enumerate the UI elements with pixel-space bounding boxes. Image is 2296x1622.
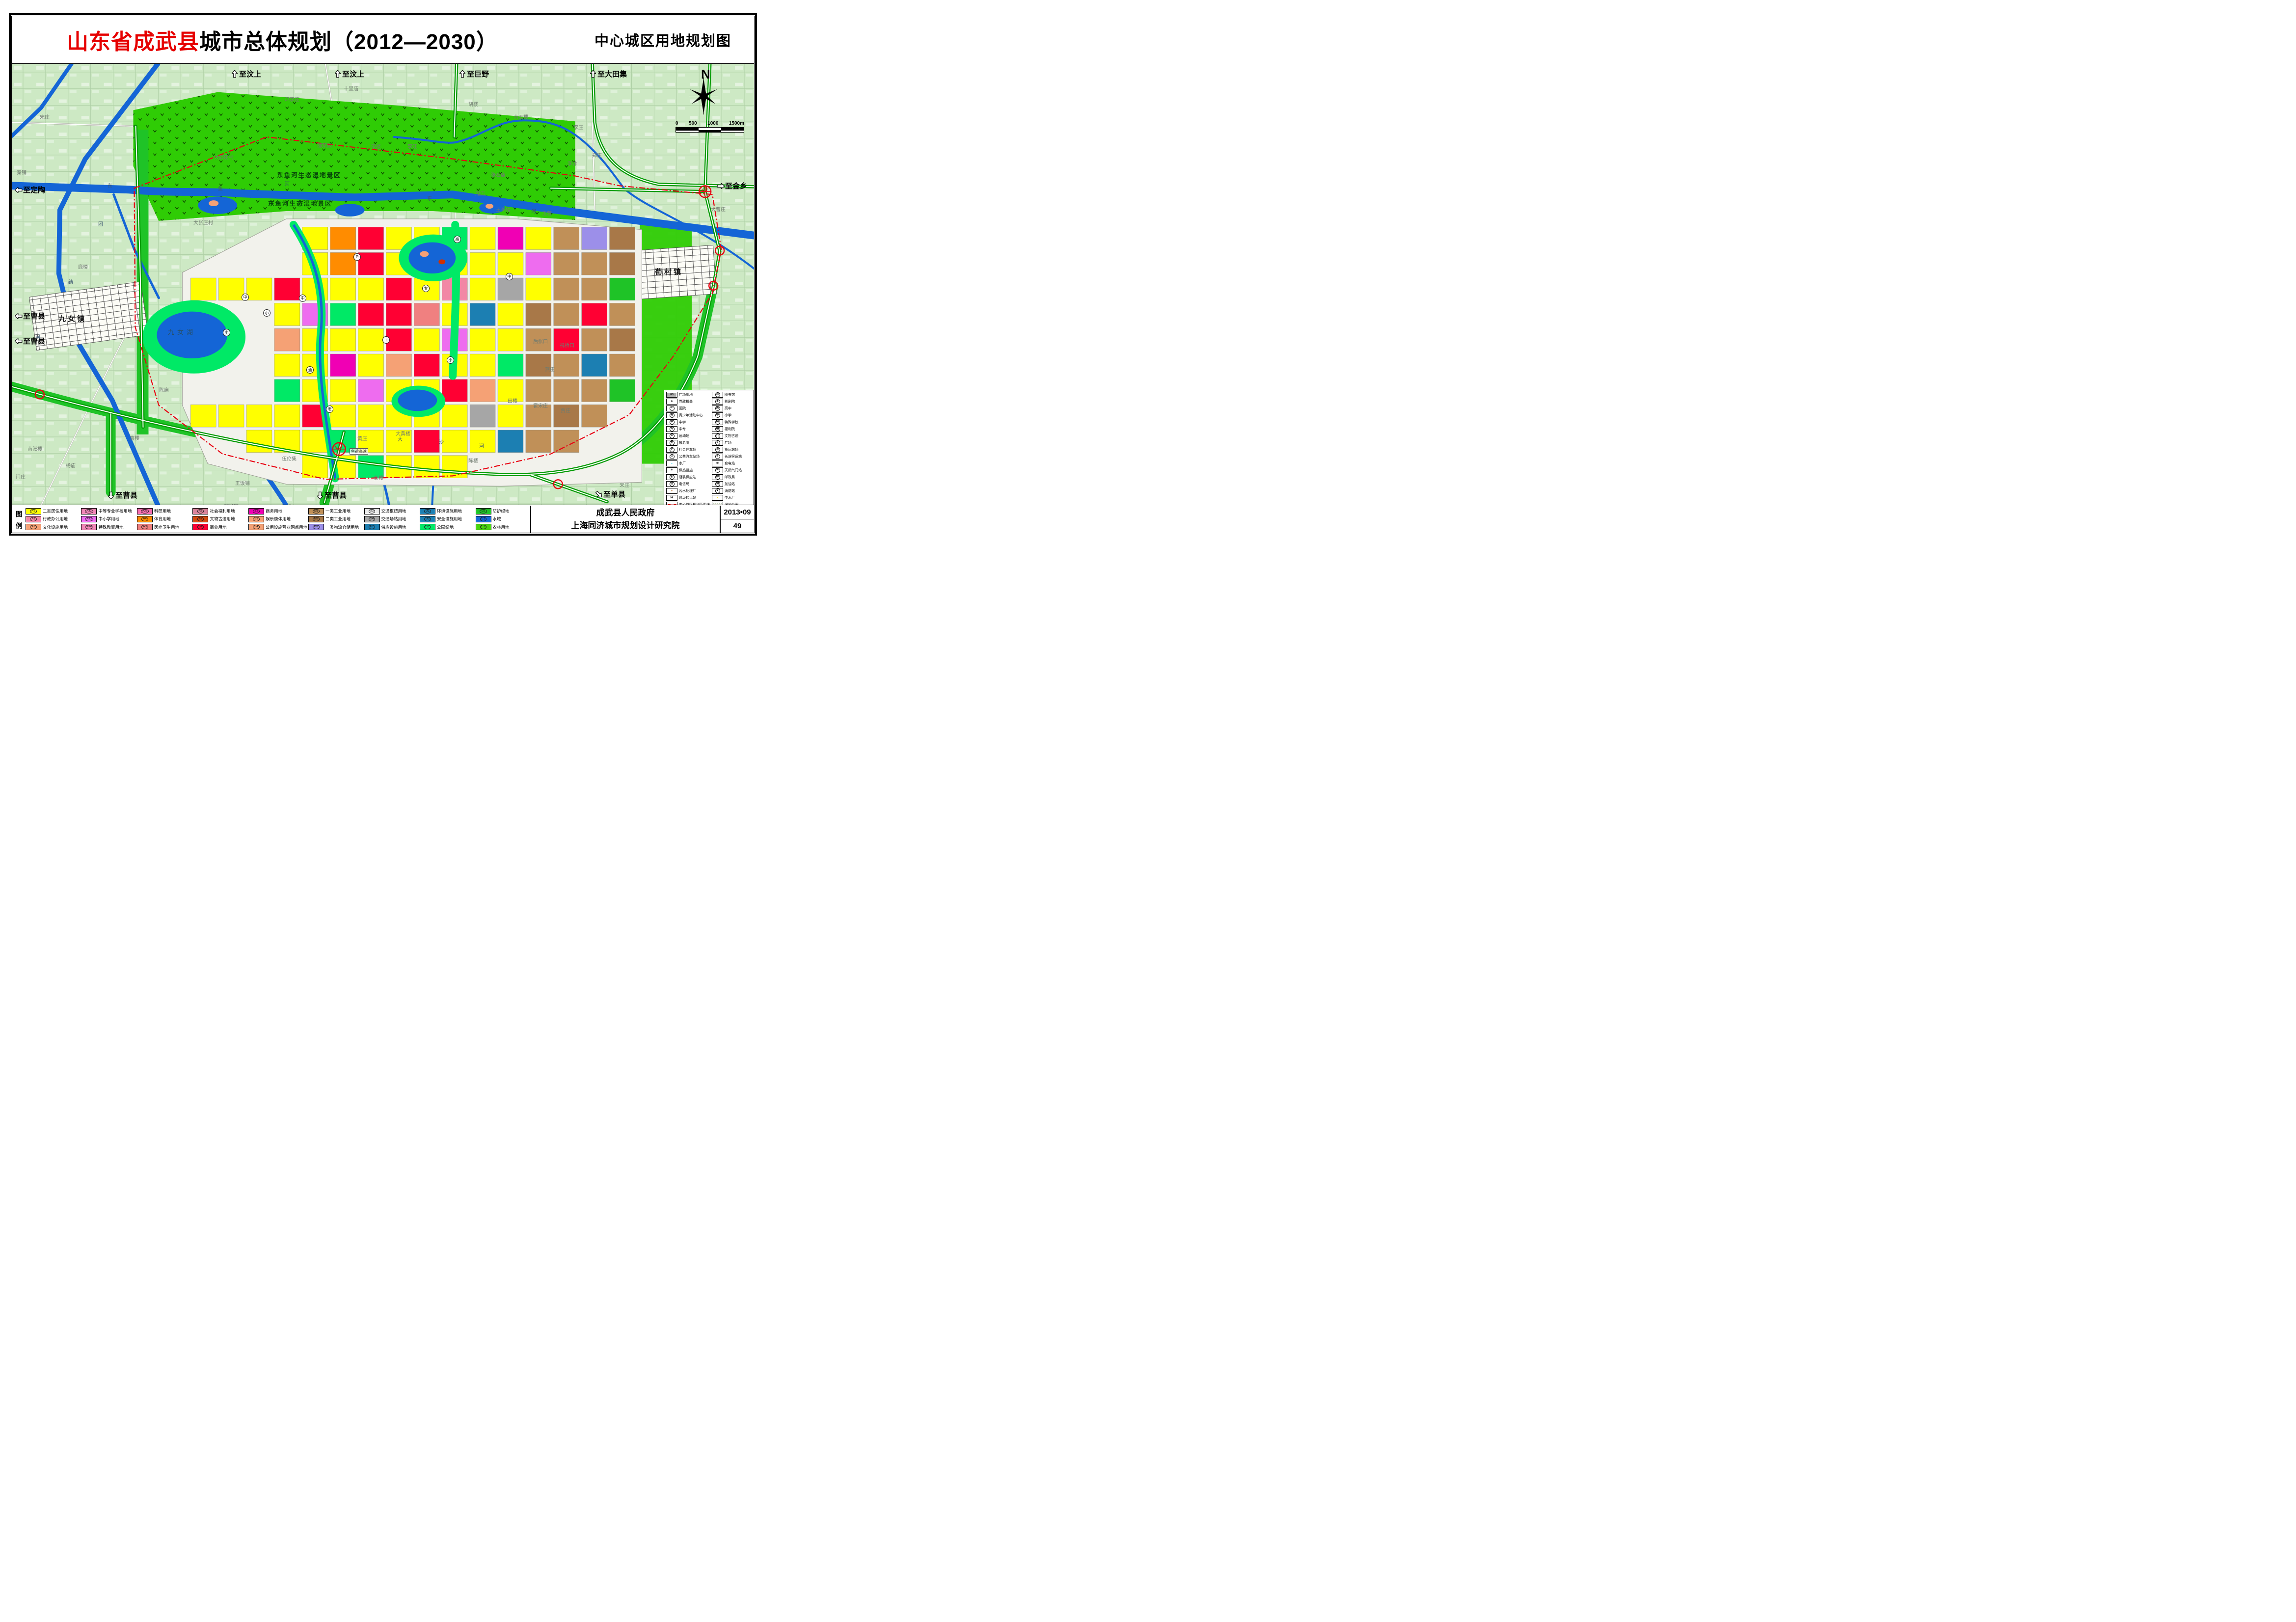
landuse-block-B2: [330, 354, 356, 377]
symbol-legend-item: ▮ 瓶装供应站: [666, 474, 710, 480]
legend-item: E2 农林用地: [476, 523, 531, 531]
symbol-legend-item: ⊟ 公共汽车站场: [666, 454, 710, 460]
landuse-block-S4: [498, 278, 523, 300]
title-block-numbers: 2013•09 49: [720, 506, 754, 533]
symbol-legend-item: ∏ 文物古迹: [712, 433, 753, 439]
legend-label: 文化设施用地: [43, 524, 68, 530]
legend-color-swatch: E2: [476, 524, 491, 530]
symbol-icon: ◒: [717, 496, 719, 500]
legend-label: 防护绿地: [493, 508, 510, 514]
legend-item: E1 水域: [476, 515, 531, 523]
legend-color-swatch: E1: [476, 516, 491, 522]
legend-item: A7 文物古迹用地: [192, 515, 247, 523]
landuse-block-R2: [442, 405, 467, 427]
symbol-icon: ⇄: [715, 447, 720, 452]
symbol-label: 货运站场: [725, 447, 738, 452]
scale-tick: 1500m: [729, 121, 744, 126]
legend-code: A35: [141, 509, 149, 514]
legend-color-swatch: A35: [137, 508, 153, 514]
north-label: N: [701, 67, 710, 82]
legend-color-swatch: R2: [26, 508, 41, 514]
symbol-label: 中学: [679, 420, 686, 425]
legend-color-swatch: M1: [308, 508, 324, 514]
symbol-legend-item: 中 中学: [666, 419, 710, 425]
symbol-icon: ⊠: [715, 468, 720, 473]
scale-tick: 500: [689, 121, 697, 126]
legend-item: A4 体育用地: [137, 515, 192, 523]
symbol-icon: ☸: [715, 454, 720, 459]
symbol-icon-frame: ⊟: [666, 454, 677, 460]
symbol-icon-frame: ◉: [712, 399, 723, 405]
legend-label: 特殊教育用地: [98, 524, 123, 530]
legend-color-swatch: U3: [420, 516, 435, 522]
landuse-block-R2: [190, 278, 216, 300]
legend-label: 中等专业学校用地: [98, 508, 132, 514]
symbol-label: 医院: [679, 406, 686, 411]
facility-marker-icon: 中: [299, 295, 306, 302]
legend-label: 中小学用地: [98, 516, 119, 522]
legend-color-swatch: A4: [137, 516, 153, 522]
landuse-block-A33: [526, 252, 551, 275]
symbol-label: 高中: [725, 406, 731, 411]
symbol-legend-item: 邮 邮政局: [712, 474, 753, 480]
facility-marker-icon: 高: [454, 236, 461, 243]
legend-item: A2 文化设施用地: [26, 523, 80, 531]
landuse-block-G2: [610, 278, 635, 300]
landuse-block-B1: [386, 303, 411, 326]
landuse-block-R2: [470, 430, 495, 453]
symbol-label: 污水处理厂: [679, 488, 696, 493]
symbol-label: 广场: [725, 440, 731, 445]
legend-code: A2: [30, 525, 36, 529]
legend-code: S4: [369, 517, 375, 521]
landuse-block-M2: [610, 252, 635, 275]
symbol-label: 长途客运站: [725, 454, 742, 459]
legend-item: S3 交通枢纽用地: [364, 507, 419, 515]
landuse-block-G1: [274, 379, 300, 402]
symbol-legend-item: 老 敬老院: [666, 440, 710, 446]
facility-marker-icon: 小: [447, 356, 454, 364]
legend-item: U2 环境设施用地: [420, 507, 475, 515]
symbol-legend-item: 专 中专: [666, 426, 710, 432]
government-name: 成武县人民政府: [531, 507, 720, 519]
symbol-legend-item: S 广场: [712, 440, 753, 446]
landuse-block-B1: [414, 354, 439, 377]
landuse-block-M1: [610, 354, 635, 377]
symbol-icon: ∏: [715, 433, 720, 438]
symbol-legend-item: ⊖ 运动场: [666, 433, 710, 439]
symbol-legend-item: ◒ 污水处理厂: [666, 488, 710, 494]
landuse-block-R2: [498, 252, 523, 275]
scale-tick: 1000: [707, 121, 718, 126]
symbol-label: 加油站: [725, 482, 735, 487]
legend-label: 行政办公用地: [43, 516, 68, 522]
symbol-icon-frame: 信: [666, 481, 677, 487]
legend-label: 交通枢纽用地: [381, 508, 406, 514]
legend-label: 体育用地: [154, 516, 171, 522]
sheet-number: 49: [721, 519, 754, 533]
symbol-label: 水厂: [679, 461, 686, 466]
legend-code: A5: [141, 525, 148, 529]
symbol-legend-item: + 医院: [666, 405, 710, 411]
landuse-block-M1: [554, 379, 579, 402]
legend-code: A6: [197, 509, 204, 514]
landuse-block-R2: [302, 430, 328, 453]
landuse-block-B1: [274, 278, 300, 300]
legend-item: B4 公用设施营业网点用地: [248, 523, 307, 531]
legend-label: 文物古迹用地: [210, 516, 235, 522]
landuse-block-B3: [470, 379, 495, 402]
legend-item: U3 安全设施用地: [420, 515, 475, 523]
symbol-legend-item: ⊠ 天然气门站: [712, 467, 753, 473]
legend-label: 水域: [493, 516, 501, 522]
legend-item: U1 供应设施用地: [364, 523, 419, 531]
symbol-icon-frame: ▤: [712, 392, 723, 398]
facility-marker-icon: 油: [306, 366, 314, 374]
symbol-icon-frame: ☸: [712, 454, 723, 460]
legend-code: A7: [197, 517, 204, 521]
symbol-icon: ◒: [671, 462, 673, 465]
facility-marker-icon: 中: [242, 294, 249, 301]
landuse-block-R2: [358, 328, 384, 351]
symbol-icon-frame: 小: [712, 412, 723, 418]
legend-label: 环境设施用地: [437, 508, 462, 514]
map-canvas[interactable]: 至汶上 至汶上 至巨野: [12, 63, 754, 505]
landuse-block-B1: [554, 328, 579, 351]
legend-item: M2 二类工业用地: [308, 515, 363, 523]
landuse-block-R2: [274, 303, 300, 326]
inner-border: 山东省成武县城市总体规划（2012—2030） 中心城区用地规划图: [11, 16, 755, 533]
symbol-legend-item: G3 广场用地: [666, 392, 710, 398]
landuse-legend: 图例 R2 二类居住用地 A1 行政办公用地: [12, 506, 530, 533]
legend-color-swatch: G1: [420, 524, 435, 530]
legend-color-swatch: M2: [308, 516, 324, 522]
legend-code: U1: [369, 525, 376, 529]
legend-label: 公用设施营业网点用地: [266, 524, 307, 530]
landuse-block-R2: [442, 430, 467, 453]
symbol-icon: ▤: [715, 392, 720, 397]
legend-code: A1: [30, 517, 36, 521]
legend-code: E2: [480, 525, 486, 529]
legend-code: B1: [197, 525, 204, 529]
legend-item: A5 医疗卫生用地: [137, 523, 192, 531]
symbol-label: 湿地公园: [725, 502, 738, 505]
symbol-icon-frame: ⋈: [666, 495, 677, 501]
landuse-block-U1: [470, 303, 495, 326]
landuse-block-R2: [498, 303, 523, 326]
symbol-label: 天然气门站: [725, 468, 742, 473]
symbol-icon-frame: 专: [666, 426, 677, 432]
design-institute-name: 上海同济城市规划设计研究院: [531, 519, 720, 532]
symbol-icon: ⊟: [670, 454, 675, 459]
legend-color-swatch: U2: [420, 508, 435, 514]
legend-label: 供应设施用地: [381, 524, 406, 530]
symbol-legend-item: 青 青少年活动中心: [666, 412, 710, 418]
symbol-legend-item: ◒ 水厂: [666, 460, 710, 466]
landuse-block-M1: [610, 303, 635, 326]
legend-item: G2 防护绿地: [476, 507, 531, 515]
legend-code: M1: [313, 509, 320, 514]
symbol-legend-item: ⊗ 变电站: [712, 460, 753, 466]
symbol-icon: 高: [715, 406, 720, 411]
landuse-block-W1: [582, 227, 607, 250]
landuse-block-R2: [218, 405, 244, 427]
legend-color-swatch: A6: [192, 508, 208, 514]
landuse-block-R2: [330, 379, 356, 402]
symbol-icon: 油: [715, 482, 720, 487]
symbol-icon: G3: [667, 393, 676, 397]
landuse-block-U1: [498, 430, 523, 453]
symbol-icon-frame: ▮: [666, 474, 677, 480]
symbol-legend-item: P 社会停车场: [666, 447, 710, 453]
symbol-icon: ⊖: [670, 433, 675, 438]
legend-code: B4: [253, 525, 259, 529]
symbol-icon: [713, 503, 722, 505]
legend-code: M2: [313, 517, 320, 521]
legend-label: 交通场站用地: [381, 516, 406, 522]
symbol-icon: P: [670, 447, 675, 452]
legend-item: A34 特殊教育用地: [81, 523, 136, 531]
landuse-block-G1: [498, 354, 523, 377]
landuse-block-A4: [330, 227, 356, 250]
landuse-block-M1: [526, 405, 551, 427]
landuse-block-R2: [358, 430, 384, 453]
symbol-icon: ⋈: [670, 496, 674, 500]
symbol-legend-item: ⇄ 货运站场: [712, 447, 753, 453]
facility-marker-icon: 老: [326, 405, 333, 413]
legend-code: A33: [85, 517, 93, 521]
facility-marker-icon: P: [353, 253, 361, 261]
landuse-block-B1: [386, 328, 411, 351]
legend-item: A35 科研用地: [137, 507, 192, 515]
landuse-block-R2: [526, 278, 551, 300]
symbol-icon-frame: 邮: [712, 474, 723, 480]
scale-ticks: 050010001500m: [675, 121, 744, 126]
legend-color-swatch: B3: [248, 516, 264, 522]
legend-label: 科研用地: [154, 508, 171, 514]
symbol-icon-frame: ◒: [712, 495, 723, 501]
symbol-icon-frame: ⊖: [666, 433, 677, 439]
legend-color-swatch: A2: [26, 524, 41, 530]
legend-item: R2 二类居住用地: [26, 507, 80, 515]
symbol-icon: 专: [670, 427, 675, 432]
legend-color-swatch: A32: [81, 508, 97, 514]
symbol-label: 瓶装供应站: [679, 475, 696, 480]
symbol-icon: 青: [670, 413, 675, 418]
landuse-block-M1: [582, 379, 607, 402]
symbol-icon-frame: G3: [666, 392, 677, 398]
symbol-label: 运动场: [679, 433, 689, 438]
landuse-block-R2: [470, 252, 495, 275]
legend-code: B2: [253, 509, 259, 514]
landuse-block-G1: [358, 456, 384, 478]
landuse-block-M1: [582, 328, 607, 351]
legend-label: 一类物流仓储用地: [325, 524, 359, 530]
symbol-icon-frame: ⊠: [712, 467, 723, 473]
legend-label: 安全设施用地: [437, 516, 462, 522]
legend-code: G1: [424, 525, 431, 529]
landuse-block-M1: [526, 379, 551, 402]
scale-tick: 0: [675, 121, 678, 126]
symbol-icon-frame: ∏: [712, 433, 723, 439]
legend-color-swatch: G2: [476, 508, 491, 514]
symbol-icon-frame: ⊗: [712, 460, 723, 466]
legend-code: W1: [313, 525, 320, 529]
symbol-icon: ◒: [671, 489, 673, 493]
symbol-icon-frame: 青: [666, 412, 677, 418]
symbol-icon: 信: [670, 482, 675, 487]
landuse-block-M1: [582, 252, 607, 275]
symbol-icon: 老: [670, 440, 675, 445]
legend-code: B3: [253, 517, 259, 521]
landuse-block-G1: [330, 303, 356, 326]
landuse-block-B1: [442, 379, 467, 402]
title-block-organizations: 成武县人民政府 上海同济城市规划设计研究院: [530, 506, 720, 533]
legend-grid: R2 二类居住用地 A1 行政办公用地 A2 文化设施用地: [26, 507, 530, 531]
symbol-icon: ☀: [671, 469, 674, 472]
landuse-block-R2: [274, 354, 300, 377]
symbol-label: 福利院: [725, 427, 735, 432]
legend-code: A4: [141, 517, 148, 521]
legend-color-swatch: B2: [248, 508, 264, 514]
legend-code: A32: [85, 509, 93, 514]
symbol-icon-frame: ★: [666, 399, 677, 405]
symbol-icon: ◉: [715, 399, 720, 404]
landuse-block-B1: [386, 278, 411, 300]
symbol-label: 特殊学校: [725, 420, 738, 425]
landuse-block-R2: [274, 405, 300, 427]
legend-label: 商业用地: [210, 524, 226, 530]
symbol-label: 敬老院: [679, 440, 689, 445]
symbol-legend-item: ☸ 长途客运站: [712, 454, 753, 460]
legend-caption: 图例: [16, 509, 24, 531]
symbol-icon-frame: 油: [712, 481, 723, 487]
legend-label: 二类工业用地: [325, 516, 351, 522]
landuse-block-R2: [526, 227, 551, 250]
symbol-icon-frame: +: [666, 405, 677, 411]
legend-item: M1 一类工业用地: [308, 507, 363, 515]
symbol-legend-item: 福 福利院: [712, 426, 753, 432]
legend-color-swatch: S3: [364, 508, 380, 514]
symbol-icon: S: [715, 440, 720, 445]
symbol-legend-item: 信 电信局: [666, 481, 710, 487]
landuse-block-M1: [554, 303, 579, 326]
symbol-icon-frame: P: [666, 447, 677, 453]
legend-item: A1 行政办公用地: [26, 515, 80, 523]
landuse-block-M1: [582, 278, 607, 300]
landuse-block-R2: [330, 405, 356, 427]
legend-item: W1 一类物流仓储用地: [308, 523, 363, 531]
symbol-label: 党政机关: [679, 399, 693, 404]
symbol-icon-frame: ◒: [666, 488, 677, 494]
landuse-block-M1: [526, 328, 551, 351]
landuse-block-G2: [610, 379, 635, 402]
symbol-label: 变电站: [725, 461, 735, 466]
legend-code: U2: [424, 509, 431, 514]
legend-item: B2 商务用地: [248, 507, 307, 515]
symbol-icon: ▲: [715, 488, 720, 493]
facility-marker-icon: 专: [422, 285, 430, 292]
symbol-legend-item: ☀ 供热设施: [666, 467, 710, 473]
symbol-legend-item: 油 加油站: [712, 481, 753, 487]
landuse-block-A4: [330, 252, 356, 275]
symbol-icon-frame: 福: [712, 426, 723, 432]
header: 山东省成武县城市总体规划（2012—2030） 中心城区用地规划图: [12, 16, 754, 63]
landuse-block-M2: [526, 354, 551, 377]
landuse-block-M2: [554, 405, 579, 427]
facility-marker-icon: 小: [263, 309, 270, 317]
symbol-label: 影剧院: [725, 399, 735, 404]
symbol-label: 广场用地: [679, 392, 693, 397]
landuse-block-R2: [358, 278, 384, 300]
landuse-block-R2: [246, 405, 272, 427]
landuse-block-M2: [610, 328, 635, 351]
landuse-block-R2: [470, 227, 495, 250]
symbol-icon-frame: ◒: [666, 460, 677, 466]
legend-label: 农林用地: [493, 524, 510, 530]
legend-item: A6 社会福利用地: [192, 507, 247, 515]
legend-label: 娱乐康体用地: [266, 516, 291, 522]
landuse-block-M1: [554, 252, 579, 275]
symbol-label: 供热设施: [679, 468, 693, 473]
symbol-legend-item: ◉ 影剧院: [712, 399, 753, 405]
symbol-label: 文物古迹: [725, 433, 738, 438]
legend-label: 社会福利用地: [210, 508, 235, 514]
facility-marker-icon: 小: [223, 329, 230, 336]
symbol-legend-box: G3 广场用地 ★ 党政机关 + 医院: [664, 390, 754, 505]
symbol-legend-item: 特 特殊学校: [712, 419, 753, 425]
symbol-icon-frame: S: [712, 440, 723, 446]
legend-label: 二类居住用地: [43, 508, 68, 514]
legend-item: S4 交通场站用地: [364, 515, 419, 523]
legend-color-swatch: B4: [248, 524, 264, 530]
symbol-label: 中心城区规划范围线: [679, 502, 710, 505]
symbol-icon-frame: ☀: [666, 467, 677, 473]
symbol-icon-frame: 老: [666, 440, 677, 446]
landuse-block-B1: [358, 252, 384, 275]
legend-color-swatch: U1: [364, 524, 380, 530]
legend-label: 一类工业用地: [325, 508, 351, 514]
legend-item: G1 公园绿地: [420, 523, 475, 531]
landuse-block-M1: [554, 278, 579, 300]
landuse-block-R2: [470, 354, 495, 377]
landuse-block-R2: [358, 405, 384, 427]
symbol-icon-frame: [666, 502, 677, 505]
scale-bar-segments: [675, 127, 744, 133]
symbol-legend-item: 小 小学: [712, 412, 753, 418]
symbol-icon-frame: 高: [712, 405, 723, 411]
facility-marker-icon: +: [382, 336, 390, 344]
symbol-icon-frame: ▲: [712, 488, 723, 494]
symbol-legend-item: 湿地公园: [712, 502, 753, 505]
landuse-block-M1: [554, 354, 579, 377]
landuse-block-M1: [582, 405, 607, 427]
legend-label: 医疗卫生用地: [154, 524, 179, 530]
landuse-block-R2: [470, 278, 495, 300]
title-main: 城市总体规划（2012—2030）: [199, 30, 498, 54]
landuse-block-R2: [190, 405, 216, 427]
plan-date: 2013•09: [721, 506, 754, 519]
symbol-icon: 小: [715, 413, 720, 418]
legend-color-swatch: A33: [81, 516, 97, 522]
symbol-label: 垃圾转运站: [679, 495, 696, 500]
landuse-block-R2: [358, 354, 384, 377]
symbol-label: 消防站: [725, 488, 735, 493]
landuse-block-R2: [498, 405, 523, 427]
landuse-block-B2: [498, 227, 523, 250]
landuse-block-B1: [358, 303, 384, 326]
symbol-label: 青少年活动中心: [679, 413, 703, 418]
